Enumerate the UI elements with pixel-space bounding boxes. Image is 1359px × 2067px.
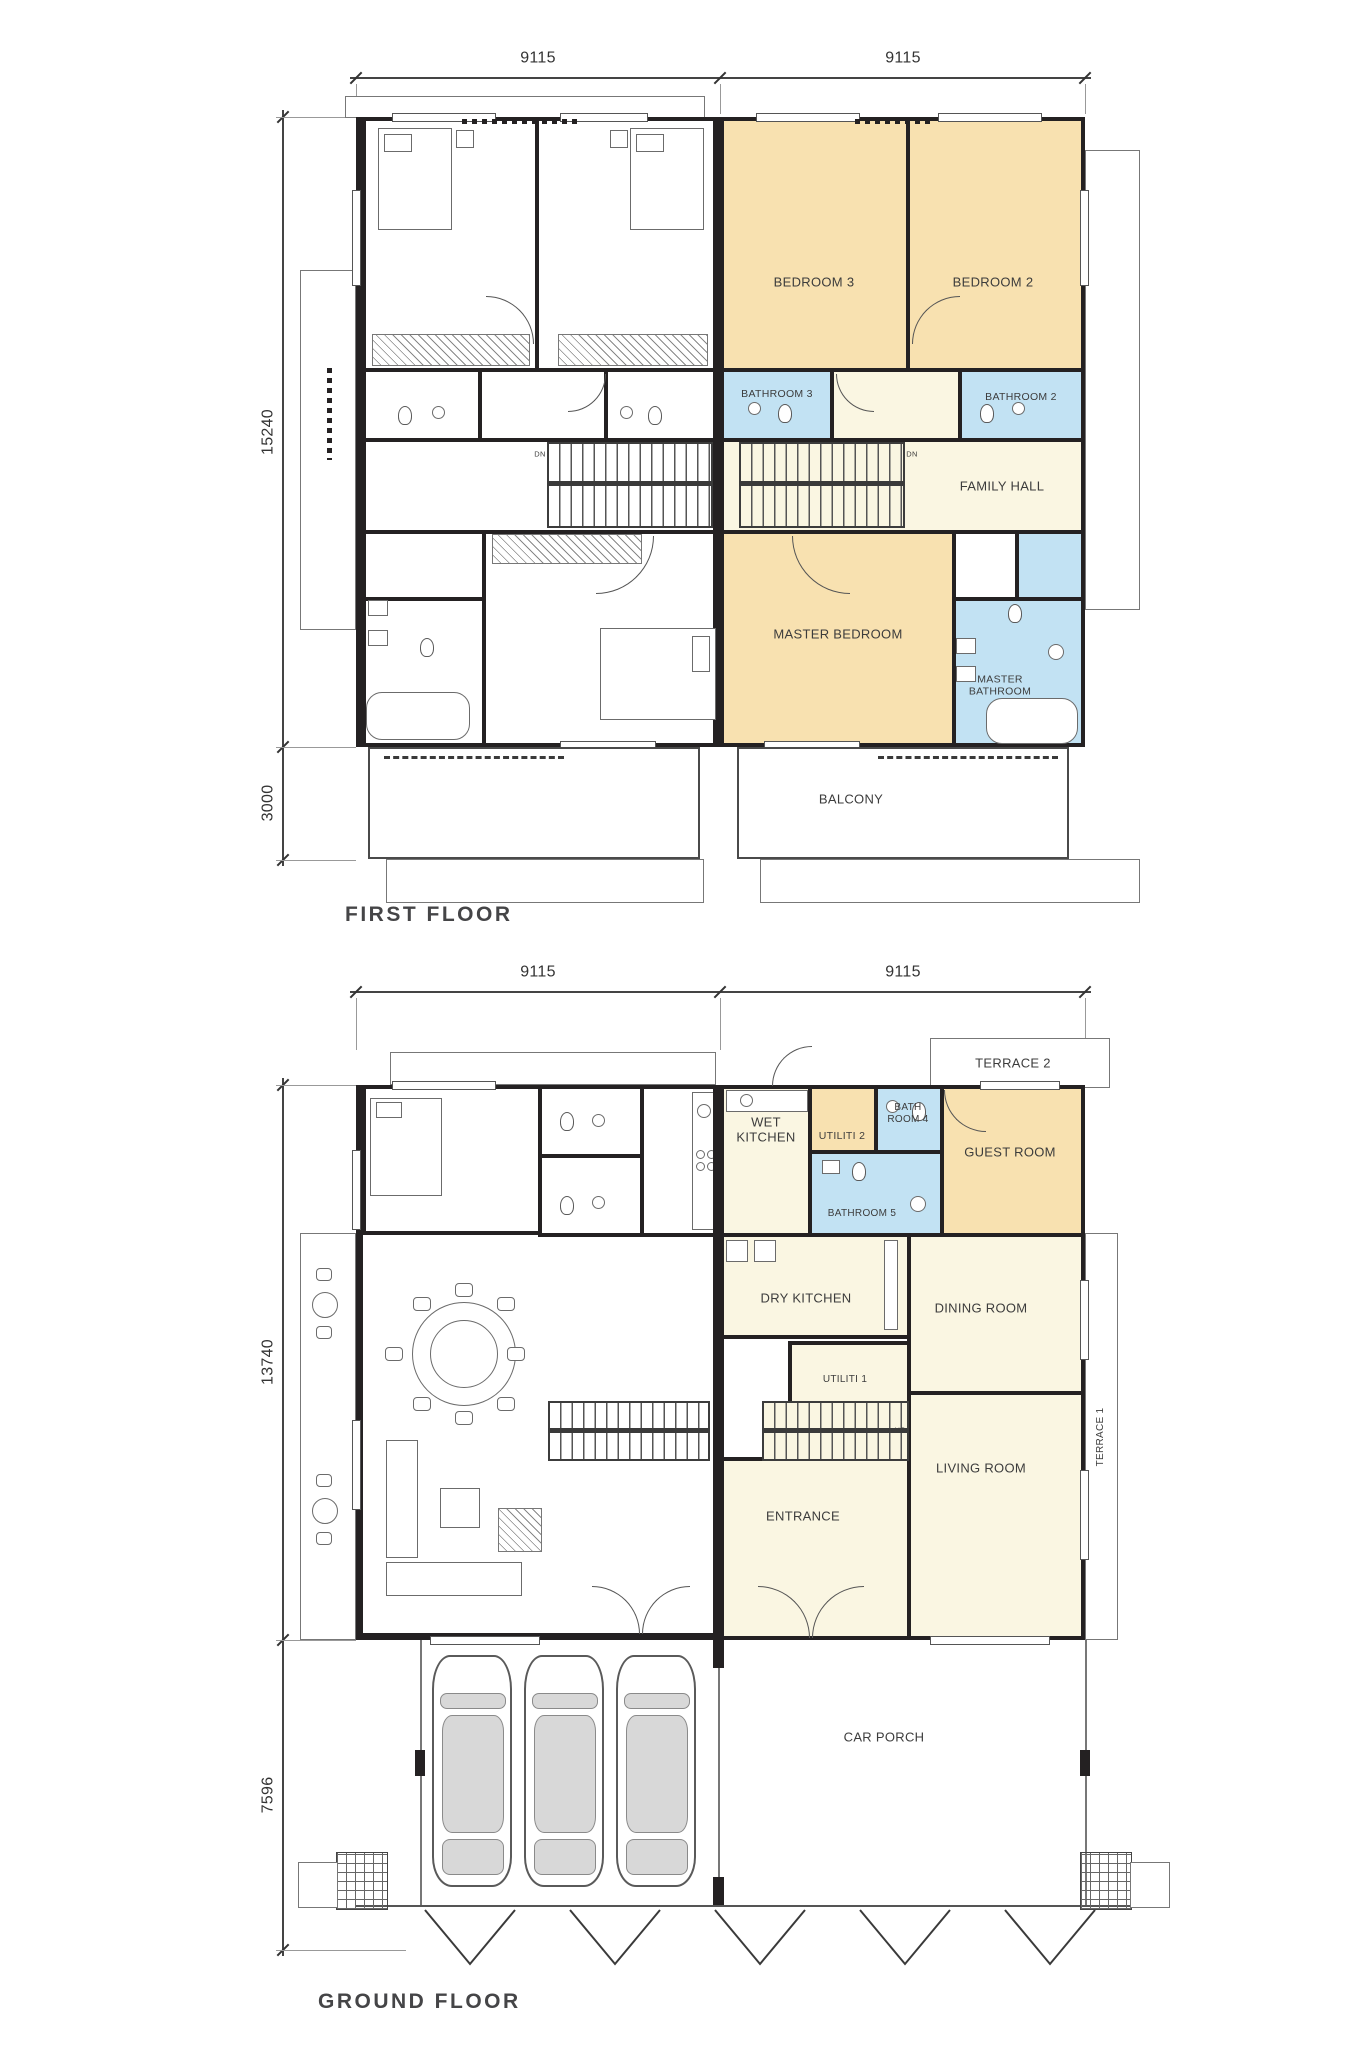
gf-dim-width-left: 9115	[520, 964, 556, 983]
gf-l-baths	[538, 1085, 644, 1237]
label-bedroom3: BEDROOM 3	[774, 274, 855, 289]
porch-divider-stub	[713, 1877, 724, 1905]
shower-drain	[1048, 644, 1064, 660]
sliding-door	[930, 1636, 1050, 1645]
burner	[696, 1150, 705, 1159]
toilet	[420, 638, 434, 657]
floor-plan-sheet: 9115 9115 15240 3000 DN DN	[0, 0, 1359, 2067]
dim-ext	[276, 117, 356, 118]
chair	[497, 1297, 515, 1311]
porch-column	[415, 1750, 425, 1776]
patio-chair	[316, 1532, 332, 1545]
gate-step	[298, 1862, 338, 1908]
window	[756, 113, 860, 122]
dim-ext	[1085, 84, 1086, 114]
label-bedroom2: BEDROOM 2	[953, 274, 1034, 289]
label-bathroom3: BATHROOM 3	[741, 388, 813, 400]
pillow	[384, 134, 412, 152]
gf-room-entrance	[720, 1457, 911, 1640]
label-utiliti2: UTILITI 2	[819, 1130, 865, 1142]
chair	[413, 1297, 431, 1311]
ff-room-bathroom3	[720, 368, 834, 442]
toilet	[560, 1196, 574, 1215]
label-dry-kitchen: DRY KITCHEN	[761, 1290, 852, 1305]
gf-room-utiliti1	[788, 1341, 911, 1405]
vanity-sink	[956, 638, 976, 654]
toilet	[648, 406, 662, 425]
car-windshield	[532, 1693, 598, 1709]
ff-title: FIRST FLOOR	[345, 903, 513, 927]
counter	[754, 1240, 776, 1262]
ff-roof-edge-right	[760, 859, 1140, 903]
ff-stairs-left-rail	[547, 481, 713, 486]
gf-l-bath-divider	[542, 1154, 640, 1158]
bathtub	[986, 698, 1078, 744]
chair	[385, 1347, 403, 1361]
gf-dim-depth-porch: 7596	[260, 1777, 279, 1814]
ff-dim-width-left: 9115	[520, 50, 556, 69]
ff-l-walkin	[362, 530, 486, 601]
sink	[822, 1160, 840, 1174]
gate-pillar	[336, 1852, 388, 1910]
ff-l-bath-b	[604, 368, 720, 442]
kitchen-sink	[697, 1104, 711, 1118]
kitchen-sink	[740, 1094, 753, 1107]
pillow	[376, 1102, 402, 1118]
dim-ext	[276, 1950, 406, 1951]
ff-dim-depth-balcony: 3000	[260, 785, 279, 822]
rug	[498, 1508, 542, 1552]
gf-title: GROUND FLOOR	[318, 1990, 521, 2014]
chair	[507, 1347, 525, 1361]
ff-vanity	[1015, 530, 1085, 601]
vent-strip	[855, 119, 935, 124]
label-bathroom2: BATHROOM 2	[985, 391, 1057, 403]
porch-divider	[718, 1640, 720, 1905]
label-bathroom4: BATH ROOM 4	[886, 1102, 930, 1126]
gf-left-dim-line	[282, 1078, 284, 1956]
wardrobe	[558, 334, 708, 366]
sofa	[386, 1440, 418, 1558]
patio-table	[312, 1498, 338, 1524]
toilet	[778, 404, 792, 423]
ff-walkin	[952, 530, 1019, 601]
window	[392, 1081, 496, 1090]
sofa	[386, 1562, 522, 1596]
window	[352, 190, 361, 286]
sink	[748, 402, 761, 415]
ff-stair-note-left: DN	[534, 451, 545, 460]
vent-strip	[462, 119, 582, 124]
patio-chair	[316, 1474, 332, 1487]
dim-ext	[276, 860, 356, 861]
vanity-sink	[368, 630, 388, 646]
door-arc	[772, 1046, 812, 1086]
burner	[696, 1162, 705, 1171]
ff-dim-depth-main: 15240	[260, 409, 279, 455]
driveway-line	[356, 1905, 1140, 1907]
ff-stair-note-right: DN	[906, 451, 917, 460]
car	[616, 1655, 696, 1887]
privacy-screen	[384, 756, 564, 759]
sink	[620, 406, 633, 419]
sink	[1012, 402, 1025, 415]
sliding-door	[430, 1636, 540, 1645]
gate-pillar	[1080, 1852, 1132, 1910]
ff-room-bedroom3	[720, 117, 910, 372]
car	[524, 1655, 604, 1887]
gf-stairs-right-rail	[762, 1428, 909, 1433]
label-family-hall: FAMILY HALL	[960, 478, 1044, 493]
privacy-screen	[878, 756, 1058, 759]
window	[1080, 1280, 1089, 1360]
label-guest-room: GUEST ROOM	[964, 1144, 1056, 1159]
gf-room-living	[907, 1391, 1085, 1640]
dim-ext	[1085, 998, 1086, 1038]
ff-balcony-right	[737, 747, 1069, 859]
label-master-bedroom: MASTER BEDROOM	[773, 626, 902, 641]
label-dining-room: DINING ROOM	[935, 1300, 1028, 1315]
nightstand	[610, 130, 628, 148]
pillow	[636, 134, 664, 152]
car-roof	[442, 1715, 504, 1833]
window	[980, 1081, 1060, 1090]
toilet	[560, 1112, 574, 1131]
ff-roof-edge-left	[386, 859, 704, 903]
dim-ext	[720, 998, 721, 1050]
porch-column	[1080, 1750, 1090, 1776]
chair	[497, 1397, 515, 1411]
shower-drain	[910, 1196, 926, 1212]
label-master-bathroom: MASTER BATHROOM	[957, 674, 1043, 699]
chair	[413, 1397, 431, 1411]
coffee-table	[440, 1488, 480, 1528]
ff-ledge-right	[1085, 150, 1140, 610]
ff-l-bath-a	[362, 368, 482, 442]
gf-stair-note-up: UP	[894, 1427, 905, 1436]
label-car-porch: CAR PORCH	[844, 1729, 925, 1744]
car-roof	[626, 1715, 688, 1833]
cabinet	[884, 1240, 898, 1330]
gf-party-wall	[713, 1085, 724, 1640]
car-rear	[534, 1839, 596, 1875]
ff-dim-width-right: 9115	[885, 50, 921, 69]
counter	[726, 1240, 748, 1262]
car-rear	[626, 1839, 688, 1875]
window	[938, 113, 1042, 122]
gate-step	[1130, 1862, 1170, 1908]
car-roof	[534, 1715, 596, 1833]
patio-table	[312, 1292, 338, 1318]
patio-chair	[316, 1326, 332, 1339]
patio-chair	[316, 1268, 332, 1281]
nightstand	[456, 130, 474, 148]
car-windshield	[624, 1693, 690, 1709]
label-balcony: BALCONY	[819, 791, 883, 806]
sink	[432, 406, 445, 419]
gf-stairs-left-rail	[548, 1428, 710, 1433]
ff-stairs-right-rail	[739, 481, 905, 486]
toilet	[1008, 604, 1022, 623]
window	[1080, 190, 1089, 286]
pillow	[692, 636, 710, 672]
label-entrance: ENTRANCE	[766, 1508, 840, 1523]
label-utiliti1: UTILITI 1	[823, 1374, 867, 1386]
window	[352, 1150, 361, 1230]
gf-dim-depth-main: 13740	[260, 1339, 279, 1385]
toilet	[398, 406, 412, 425]
label-bathroom5: BATHROOM 5	[828, 1208, 896, 1220]
dim-ext	[276, 747, 356, 748]
kitchen-counter	[726, 1090, 808, 1112]
dim-ext	[276, 1085, 356, 1086]
car-windshield	[440, 1693, 506, 1709]
ff-left-dim-line	[282, 110, 284, 866]
label-terrace2: TERRACE 2	[975, 1055, 1051, 1070]
car	[432, 1655, 512, 1887]
vent-strip	[327, 368, 332, 460]
porch-divider-stub	[713, 1640, 724, 1668]
driveway-chevrons	[410, 1908, 1150, 1970]
label-living-room: LIVING ROOM	[936, 1460, 1026, 1475]
window	[352, 1420, 361, 1510]
dining-table-inner	[430, 1320, 498, 1388]
sink	[592, 1196, 605, 1209]
label-terrace1: TERRACE 1	[1095, 1408, 1107, 1467]
vanity-sink	[368, 600, 388, 616]
label-wet-kitchen: WET KITCHEN	[730, 1115, 802, 1146]
car-rear	[442, 1839, 504, 1875]
toilet	[980, 404, 994, 423]
dim-ext	[276, 1640, 356, 1641]
dim-ext	[356, 998, 357, 1050]
gf-dim-width-right: 9115	[885, 964, 921, 983]
window	[1080, 1470, 1089, 1560]
chair	[455, 1283, 473, 1297]
ff-balcony-left	[368, 747, 700, 859]
dim-ext	[720, 84, 721, 114]
chair	[455, 1411, 473, 1425]
gf-room-dry-kitchen	[720, 1233, 911, 1339]
sink	[592, 1114, 605, 1127]
toilet	[852, 1162, 866, 1181]
bathtub	[366, 692, 470, 740]
